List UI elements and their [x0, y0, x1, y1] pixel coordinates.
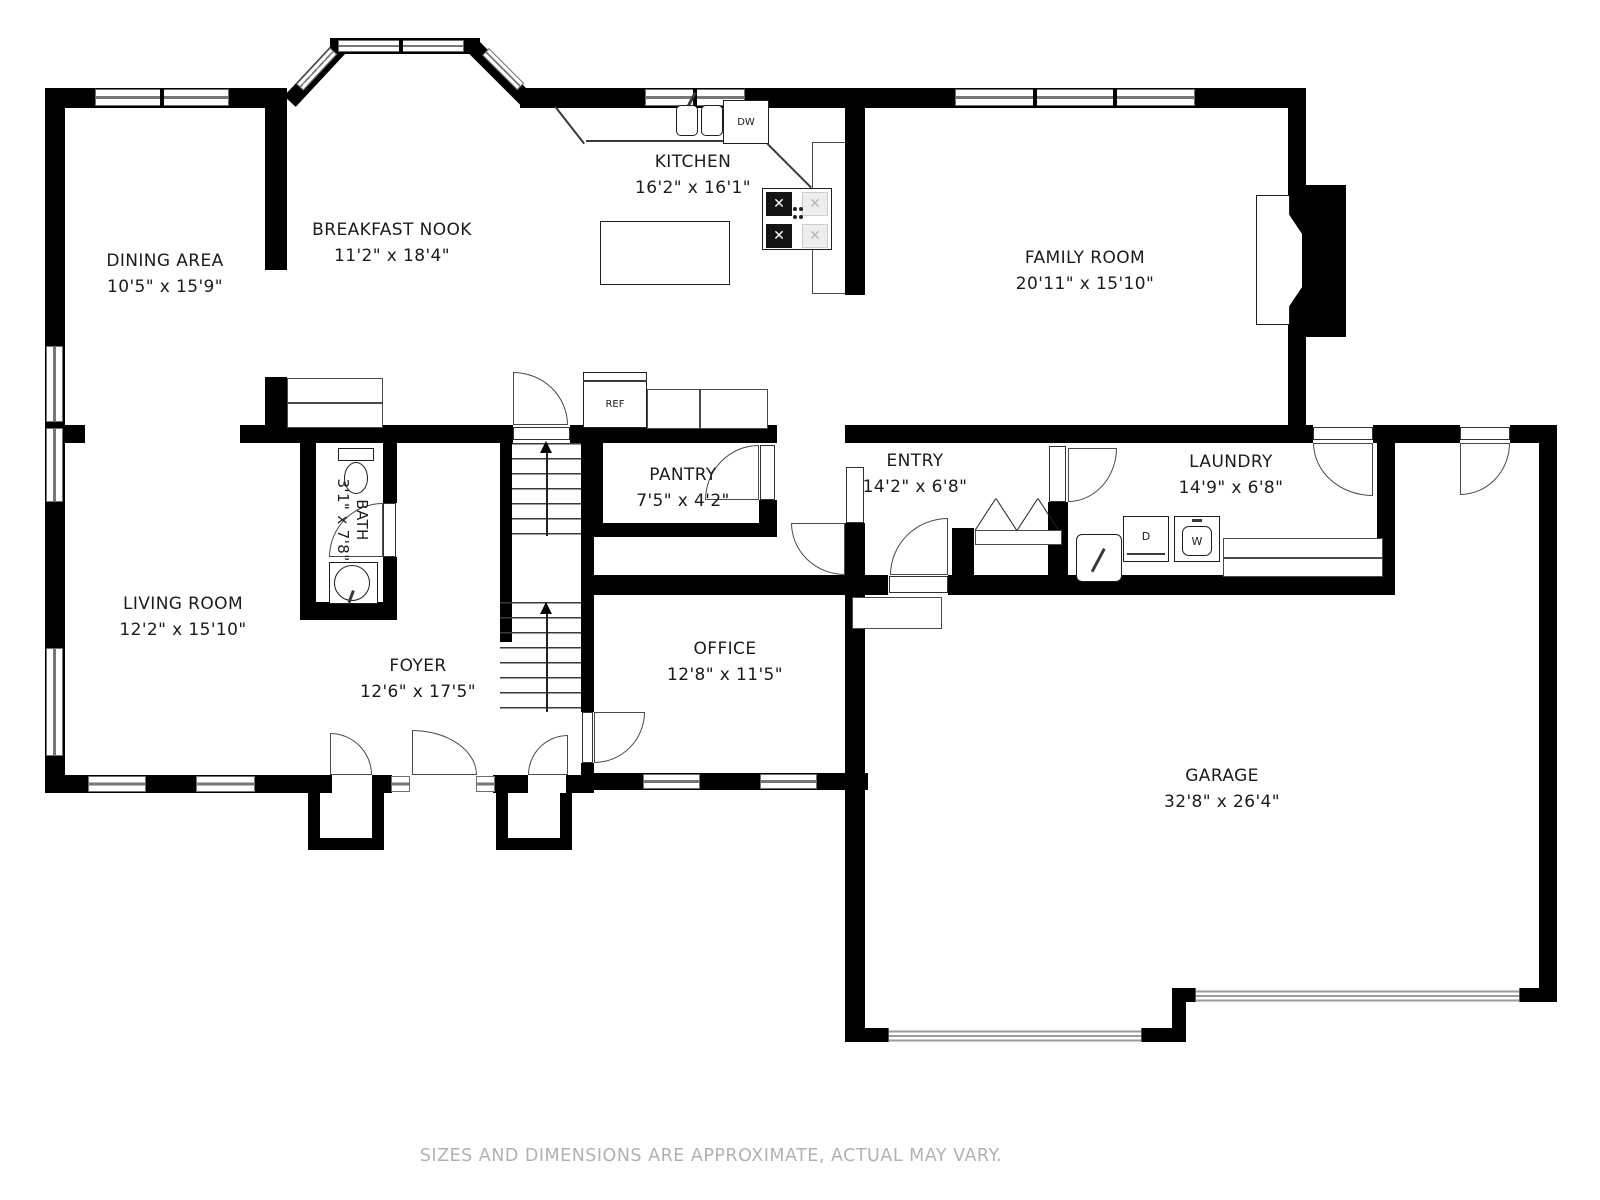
door-arc	[791, 523, 845, 575]
room-name: DINING AREA	[106, 248, 223, 274]
door-arc	[513, 372, 568, 425]
window	[955, 89, 1195, 106]
door-leaf	[513, 427, 570, 440]
room-dims: 20'11" x 15'10"	[1016, 271, 1154, 297]
garage-door	[1195, 988, 1520, 1002]
wall	[845, 425, 1313, 443]
laundry-counter	[1223, 558, 1383, 577]
stove-knob	[799, 207, 803, 211]
room-name: BREAKFAST NOOK	[312, 217, 472, 243]
room-label-bath: BATH 3'1" x 7'8"	[333, 478, 371, 561]
built-in-cabinet	[287, 378, 383, 403]
sidelite-window	[476, 776, 495, 792]
door-arc	[594, 712, 645, 763]
door-arc	[890, 518, 948, 575]
room-dims: 11'2" x 18'4"	[312, 243, 472, 269]
disclaimer-text: SIZES AND DIMENSIONS ARE APPROXIMATE, AC…	[420, 1146, 1002, 1166]
room-dims: 12'6" x 17'5"	[360, 679, 476, 705]
door-arc	[1460, 443, 1510, 495]
room-label-kitchen: KITCHEN 16'2" x 16'1"	[635, 149, 751, 201]
fireplace-hearth	[1256, 195, 1290, 325]
room-name: KITCHEN	[635, 149, 751, 175]
wall	[585, 523, 777, 537]
door-arc	[1068, 448, 1117, 502]
dryer-label: D	[1123, 516, 1169, 556]
window	[46, 648, 63, 756]
refrigerator-label: REF	[583, 380, 647, 428]
door-leaf	[846, 467, 864, 523]
counter-edge	[554, 106, 585, 144]
room-label-entry: ENTRY 14'2" x 6'8"	[863, 448, 968, 500]
room-label-family-room: FAMILY ROOM 20'11" x 15'10"	[1016, 245, 1154, 297]
wall	[300, 443, 316, 620]
room-label-dining-area: DINING AREA 10'5" x 15'9"	[106, 248, 223, 300]
window-mullion	[1113, 89, 1117, 106]
counter	[700, 389, 768, 429]
window-mullion	[399, 40, 403, 52]
door-arc	[330, 733, 372, 775]
window	[88, 776, 146, 792]
window-mullion	[160, 89, 164, 106]
room-label-living-room: LIVING ROOM 12'2" x 15'10"	[119, 591, 246, 643]
wall	[1539, 425, 1557, 1002]
door-leaf	[1049, 446, 1066, 502]
door-leaf	[760, 445, 775, 500]
entry-step	[852, 597, 942, 629]
room-dims: 16'2" x 16'1"	[635, 175, 751, 201]
room-label-office: OFFICE 12'8" x 11'5"	[667, 636, 783, 688]
room-label-garage: GARAGE 32'8" x 26'4"	[1164, 763, 1280, 815]
stair-up-arrow	[540, 602, 552, 614]
room-name: GARAGE	[1164, 763, 1280, 789]
wall	[581, 523, 594, 712]
room-name: FOYER	[360, 653, 476, 679]
wall	[45, 775, 310, 793]
room-dims: 10'5" x 15'9"	[106, 274, 223, 300]
wall	[845, 108, 865, 295]
room-dims: 32'8" x 26'4"	[1164, 789, 1280, 815]
window	[643, 774, 700, 789]
porch-recess	[508, 793, 560, 838]
wall	[581, 425, 603, 523]
counter-edge	[767, 143, 812, 188]
kitchen-sink	[701, 105, 723, 136]
wall	[594, 575, 868, 595]
stove-burner	[766, 192, 792, 216]
dishwasher-label: DW	[723, 100, 769, 144]
window	[196, 776, 255, 792]
front-door-arc	[412, 730, 477, 775]
stair-direction-line	[546, 450, 548, 536]
stove-knob	[793, 207, 797, 211]
door-leaf	[383, 503, 396, 557]
room-label-breakfast-nook: BREAKFAST NOOK 11'2" x 18'4"	[312, 217, 472, 269]
room-name: LAUNDRY	[1179, 449, 1284, 475]
room-dims: 14'2" x 6'8"	[863, 474, 968, 500]
kitchen-island	[600, 221, 730, 285]
room-name: OFFICE	[667, 636, 783, 662]
sidelite-window	[391, 776, 410, 792]
stove-burner	[802, 192, 828, 216]
built-in-cabinet	[287, 403, 383, 428]
washer-label: W	[1182, 526, 1212, 556]
bifold-door	[975, 498, 997, 530]
wall	[383, 557, 397, 602]
washer-detail	[1192, 519, 1202, 522]
door-leaf	[1460, 427, 1510, 440]
wall	[493, 775, 528, 793]
room-label-pantry: PANTRY 7'5" x 4'2"	[636, 462, 730, 514]
garage-door	[888, 1028, 1142, 1042]
room-dims: 7'5" x 4'2"	[636, 488, 730, 514]
room-name: PANTRY	[636, 462, 730, 488]
wall	[300, 602, 397, 620]
room-label-laundry: LAUNDRY 14'9" x 6'8"	[1179, 449, 1284, 501]
toilet-tank	[338, 448, 374, 461]
porch-recess	[320, 793, 372, 838]
window	[402, 40, 464, 52]
wall	[265, 108, 287, 270]
window	[760, 774, 817, 789]
floor-plan: DW REF D W DINING AREA 10'5" x 15'9" BRE…	[0, 0, 1600, 1200]
window-mullion	[1033, 89, 1037, 106]
wall	[566, 775, 594, 793]
wall	[952, 528, 974, 595]
room-label-foyer: FOYER 12'6" x 17'5"	[360, 653, 476, 705]
stove-burner	[802, 224, 828, 248]
stove-knob	[793, 215, 797, 219]
window	[46, 428, 63, 502]
wall	[845, 575, 888, 595]
bifold-door	[996, 498, 1018, 530]
stair-up-arrow	[540, 441, 552, 453]
staircase-lower-flight	[500, 602, 581, 712]
counter	[647, 389, 700, 429]
room-name: LIVING ROOM	[119, 591, 246, 617]
room-dims: 12'2" x 15'10"	[119, 617, 246, 643]
door-leaf	[582, 712, 593, 763]
door-arc	[528, 735, 568, 775]
closet-shelf	[975, 530, 1062, 545]
wall	[383, 443, 397, 503]
wall	[310, 775, 332, 793]
window	[338, 40, 400, 52]
room-name: FAMILY ROOM	[1016, 245, 1154, 271]
stove-knob	[799, 215, 803, 219]
fireplace	[1306, 185, 1346, 337]
wall	[581, 773, 868, 790]
door-leaf	[889, 576, 948, 593]
bifold-door	[1017, 498, 1039, 530]
wall	[759, 500, 777, 523]
room-name: ENTRY	[863, 448, 968, 474]
counter-edge	[586, 140, 723, 142]
kitchen-sink	[676, 105, 698, 136]
room-name: BATH	[352, 478, 371, 561]
laundry-counter	[1223, 538, 1383, 558]
stove-burner	[766, 224, 792, 248]
room-dims: 3'1" x 7'8"	[333, 478, 352, 561]
door-arc	[1313, 443, 1373, 496]
wall	[372, 775, 392, 793]
stair-direction-line	[546, 612, 548, 712]
window	[46, 346, 63, 422]
wall	[1373, 425, 1460, 443]
room-dims: 14'9" x 6'8"	[1179, 475, 1284, 501]
room-dims: 12'8" x 11'5"	[667, 662, 783, 688]
door-leaf	[1313, 427, 1373, 440]
